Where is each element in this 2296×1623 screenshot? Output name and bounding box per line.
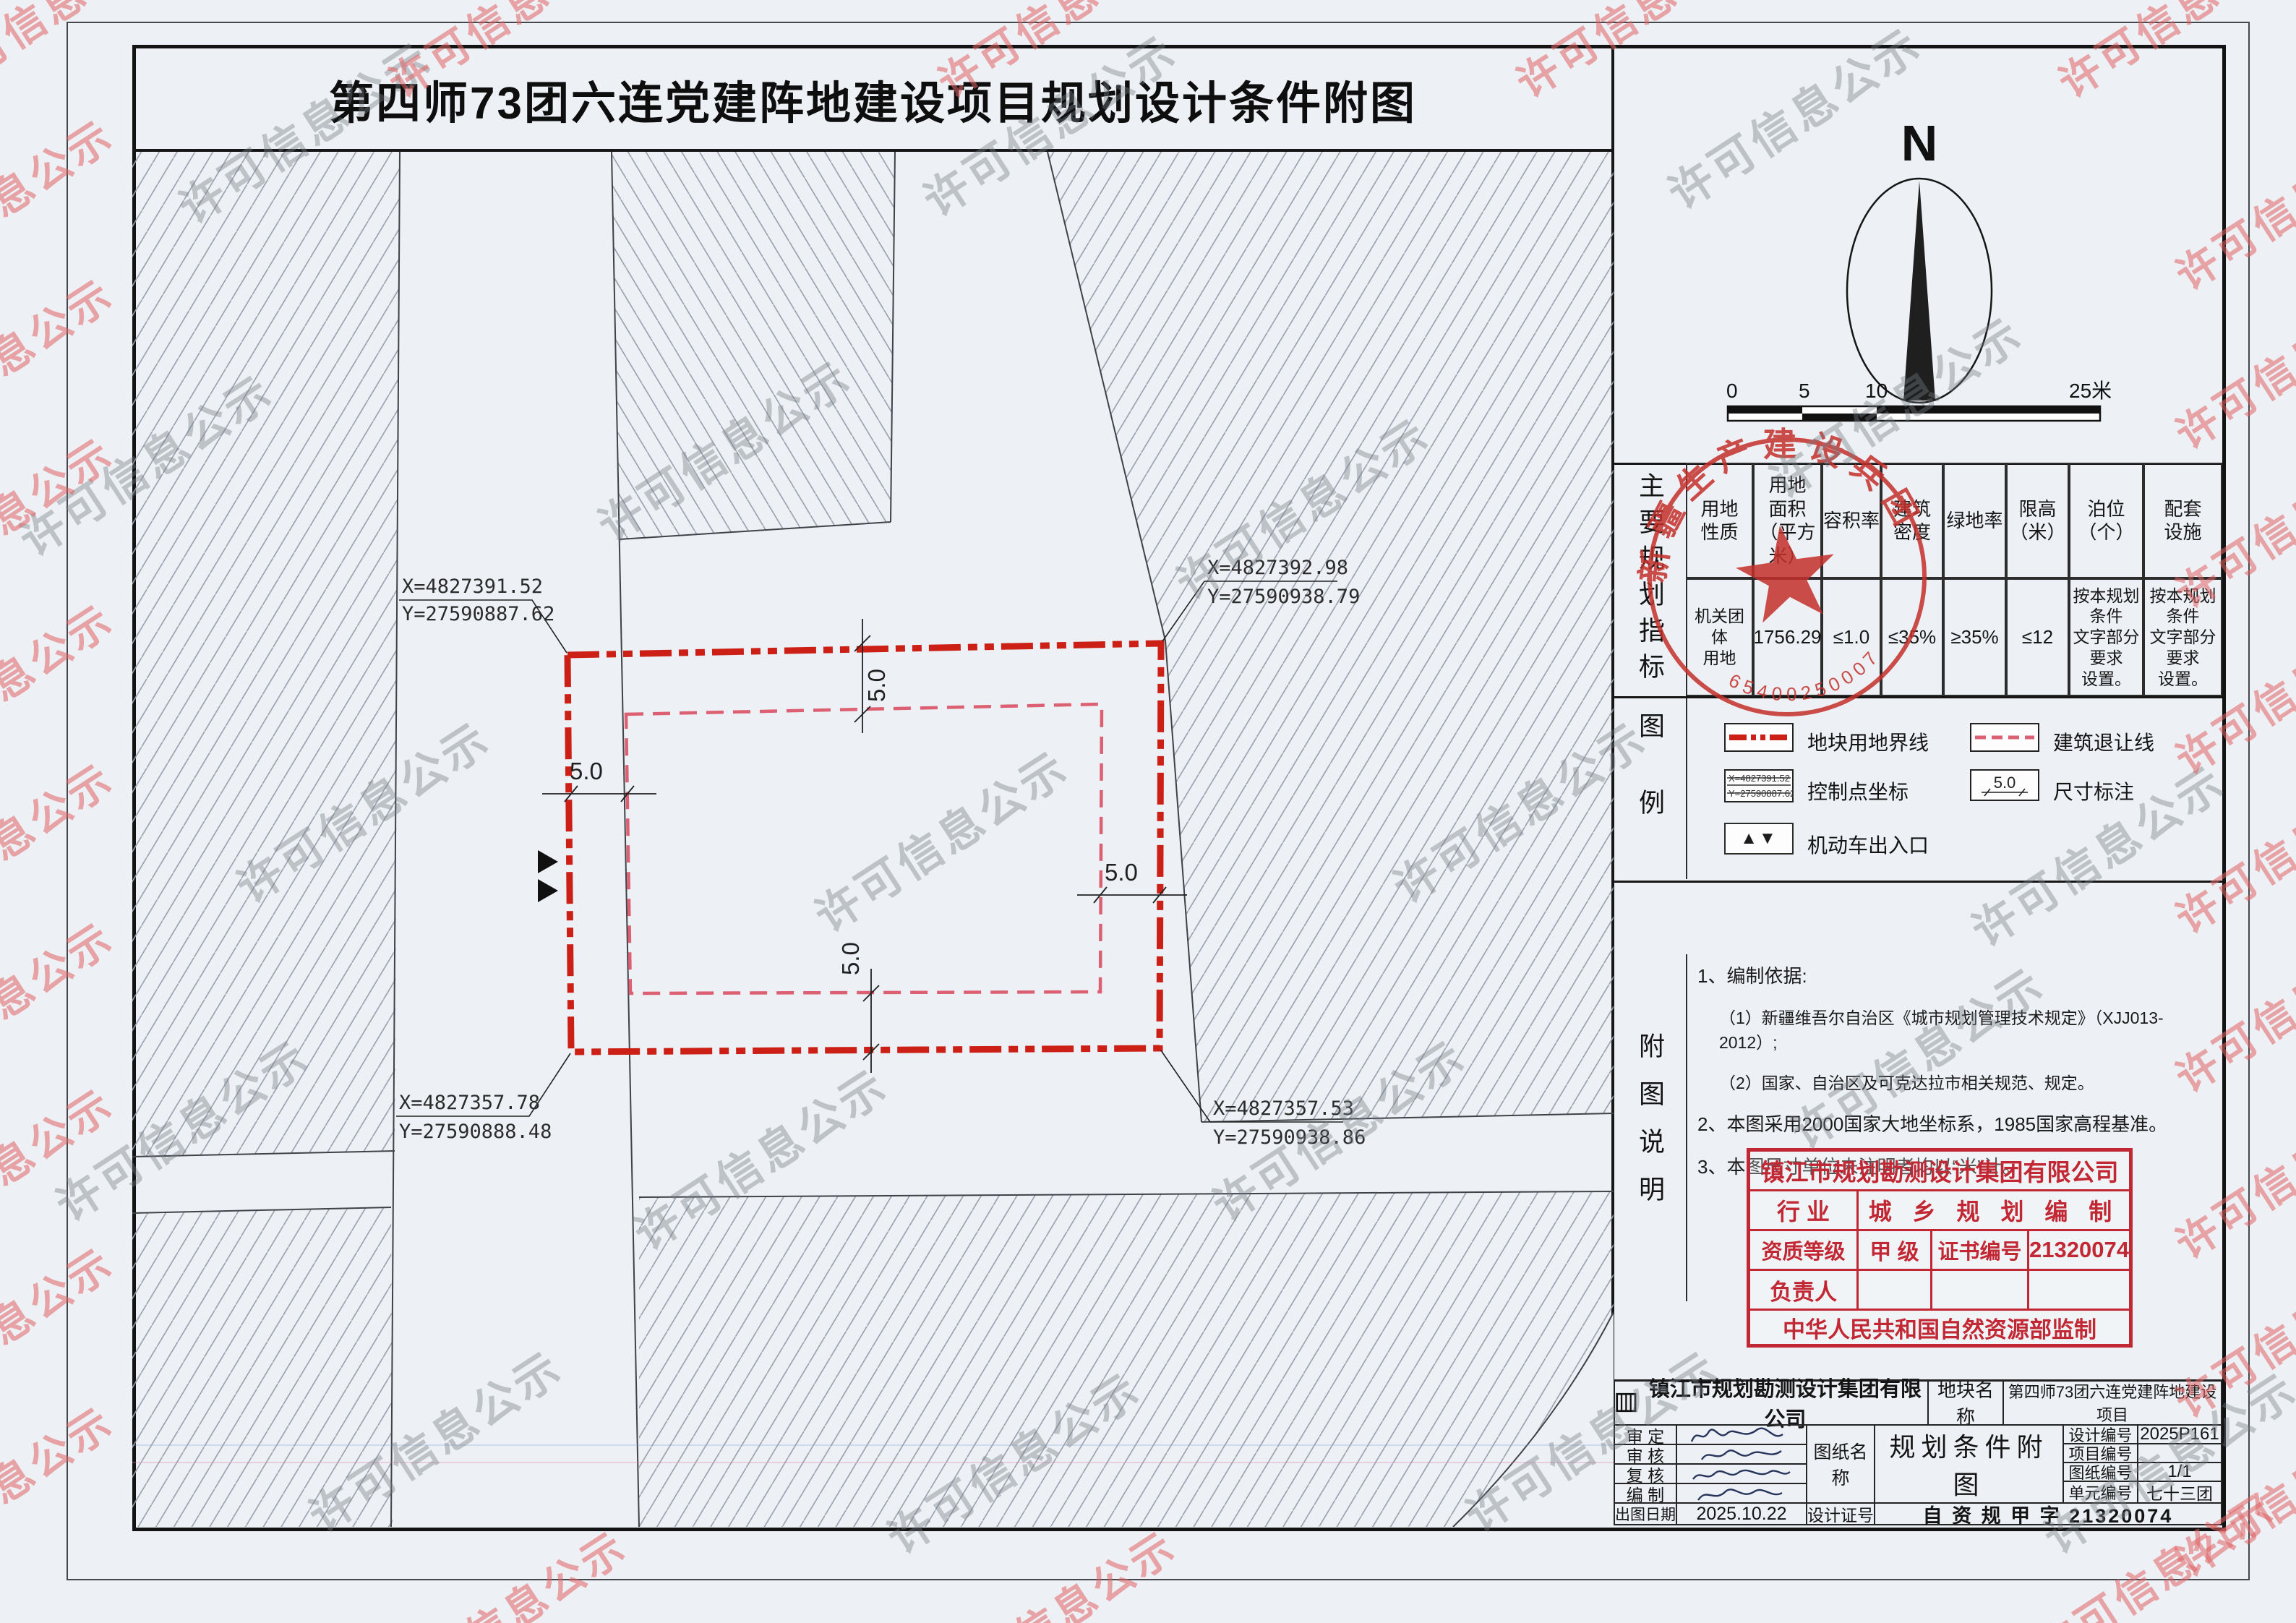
coord-tr-x: X=4827392.98 bbox=[1207, 557, 1348, 579]
signature-draft bbox=[1676, 1483, 1807, 1504]
draft-label: 编 制 bbox=[1614, 1483, 1677, 1504]
sheet-name-value: 规划条件附图 bbox=[1874, 1424, 2064, 1504]
company-logo-icon bbox=[1615, 1389, 1637, 1416]
section-line-3 bbox=[1614, 881, 2222, 883]
north-arrow: N bbox=[1836, 108, 2002, 419]
indicator-value: ≥35% bbox=[1943, 578, 2006, 696]
design-no-value: 2025P161 bbox=[2137, 1424, 2222, 1444]
legend-control-point-label: 控制点坐标 bbox=[1807, 776, 1909, 805]
coord-tl-x: X=4827391.52 bbox=[402, 575, 543, 598]
note-line: 1、编制依据: bbox=[1697, 962, 2221, 988]
legend-swatch-dimension: 5.0 bbox=[1970, 769, 2039, 801]
parcel-south bbox=[639, 1191, 1614, 1527]
compass-needle bbox=[1903, 181, 1935, 401]
svg-text:65400250007: 65400250007 bbox=[1722, 642, 1890, 715]
indicator-header: 绿地率 bbox=[1943, 463, 2006, 578]
project-no-value bbox=[2137, 1443, 2222, 1463]
seal-serial: 65400250007 bbox=[1722, 642, 1890, 715]
north-label: N bbox=[1901, 115, 1938, 171]
coord-bl-y: Y=27590888.48 bbox=[399, 1121, 552, 1143]
sheet-no-label: 图纸编号 bbox=[2062, 1462, 2138, 1482]
parcel-north bbox=[612, 152, 895, 539]
legend-dim-sample: 5.0 bbox=[1994, 774, 2016, 792]
legend-setback-label: 建筑退让线 bbox=[2053, 727, 2154, 756]
note-line: 2、本图采用2000国家大地坐标系，1985国家高程基准。 bbox=[1697, 1110, 2221, 1136]
legend-boundary-label: 地块用地界线 bbox=[1807, 727, 1929, 756]
legend-entrance-label: 机动车出入口 bbox=[1807, 830, 1929, 859]
vehicle-entrance-icon bbox=[538, 850, 558, 902]
dim-top: 5.0 bbox=[863, 669, 890, 702]
signature-recheck bbox=[1676, 1463, 1807, 1484]
coord-br-y: Y=27590938.86 bbox=[1213, 1126, 1366, 1149]
note-line: （2）国家、自治区及可克达拉市相关规范、规定。 bbox=[1719, 1069, 2221, 1094]
legend-dim-label: 尺寸标注 bbox=[2053, 776, 2134, 805]
stamp-blank bbox=[1932, 1271, 2029, 1309]
dim-bottom: 5.0 bbox=[837, 942, 864, 975]
stamp-industry: 城 乡 规 划 编 制 bbox=[1859, 1191, 2129, 1229]
setback-line bbox=[626, 704, 1102, 993]
stamp-manager-label: 负责人 bbox=[1750, 1271, 1859, 1309]
stamp-certno-label: 证书编号 bbox=[1932, 1231, 2029, 1269]
stamp-grade: 甲 级 bbox=[1859, 1231, 1932, 1269]
seal-star-icon bbox=[1731, 518, 1842, 625]
qualification-stamp: 镇江市规划勘测设计集团有限公司 行 业 城 乡 规 划 编 制 资质等级 甲 级… bbox=[1747, 1148, 2133, 1348]
design-cert-label: 设计证号 bbox=[1806, 1502, 1875, 1525]
design-cert-value: 自 资 规 甲 字 21320074 bbox=[1874, 1502, 2222, 1525]
coord-bl-x: X=4827357.78 bbox=[399, 1092, 540, 1114]
dim-right: 5.0 bbox=[1105, 859, 1138, 886]
parcel-southwest bbox=[132, 1207, 393, 1527]
stamp-industry-label: 行 业 bbox=[1750, 1191, 1859, 1229]
scale-tick-25: 25米 bbox=[2069, 380, 2112, 402]
legend-swatch-control-point: X=4827391.52 Y=27590887.62 bbox=[1724, 769, 1794, 802]
indicator-header: 泊位 （个） bbox=[2069, 463, 2143, 578]
stamp-blank bbox=[2029, 1271, 2129, 1309]
stamp-footer: 中华人民共和国自然资源部监制 bbox=[1750, 1311, 2129, 1344]
stamp-manager-blank bbox=[1859, 1271, 1932, 1309]
note-line: （1）新疆维吾尔自治区《城市规划管理技术规定》（XJJ013-2012）; bbox=[1719, 1004, 2221, 1053]
dim-left: 5.0 bbox=[570, 758, 603, 784]
scale-tick-0: 0 bbox=[1726, 380, 1738, 402]
indicator-value: 按本规划条件 文字部分要求 设置。 bbox=[2143, 578, 2222, 696]
parcel-name-label: 地块名称 bbox=[1927, 1379, 2004, 1426]
parcel-east bbox=[1048, 152, 1614, 1122]
legend-swatch-setback bbox=[1970, 723, 2039, 752]
sheet-no-value: 1/1 bbox=[2137, 1462, 2222, 1482]
issue-date-value: 2025.10.22 bbox=[1676, 1502, 1807, 1525]
indicator-value: ≤12 bbox=[2006, 578, 2069, 696]
scale-tick-10: 10 bbox=[1865, 380, 1888, 402]
indicator-value: 按本规划条件 文字部分要求 设置。 bbox=[2069, 578, 2143, 696]
signature-approve bbox=[1676, 1424, 1807, 1445]
coord-br-x: X=4827357.53 bbox=[1213, 1097, 1354, 1120]
stamp-certno: 21320074 bbox=[2029, 1231, 2129, 1269]
notes-section-label: 附图说明 bbox=[1614, 954, 1687, 1301]
sheet-name-label: 图纸名称 bbox=[1806, 1424, 1875, 1504]
issue-date-label: 出图日期 bbox=[1614, 1502, 1677, 1525]
legend-swatch-entrance: ▲▼ bbox=[1724, 823, 1794, 855]
site-plan: 5.0 5.0 5.0 5.0 X=4827391.52 Y=27590887.… bbox=[132, 152, 1614, 1527]
stamp-company: 镇江市规划勘测设计集团有限公司 bbox=[1750, 1152, 2129, 1189]
coord-tr-y: Y=27590938.79 bbox=[1207, 586, 1360, 608]
page-title: 第四师73团六连党建阵地建设项目规划设计条件附图 bbox=[132, 67, 1614, 132]
official-round-seal: 新疆生产建设兵团 65400250007 bbox=[1635, 425, 1939, 729]
titleblock-company-cell: 镇江市规划勘测设计集团有限公司 bbox=[1614, 1379, 1929, 1426]
signature-review bbox=[1676, 1444, 1807, 1465]
parcel-name-value: 第四师73团六连党建阵地建设项目 bbox=[2002, 1379, 2222, 1426]
drawing-sheet: 第四师73团六连党建阵地建设项目规划设计条件附图 bbox=[0, 0, 2296, 1623]
stamp-grade-label: 资质等级 bbox=[1750, 1231, 1859, 1269]
scale-bar: 0 5 10 25米 bbox=[1721, 376, 2115, 427]
coord-tl-y: Y=27590887.62 bbox=[402, 603, 554, 625]
indicator-header: 配套 设施 bbox=[2143, 463, 2222, 578]
indicator-header: 限高 （米） bbox=[2006, 463, 2069, 578]
parcel-west bbox=[132, 152, 400, 1157]
scale-tick-5: 5 bbox=[1799, 380, 1810, 402]
